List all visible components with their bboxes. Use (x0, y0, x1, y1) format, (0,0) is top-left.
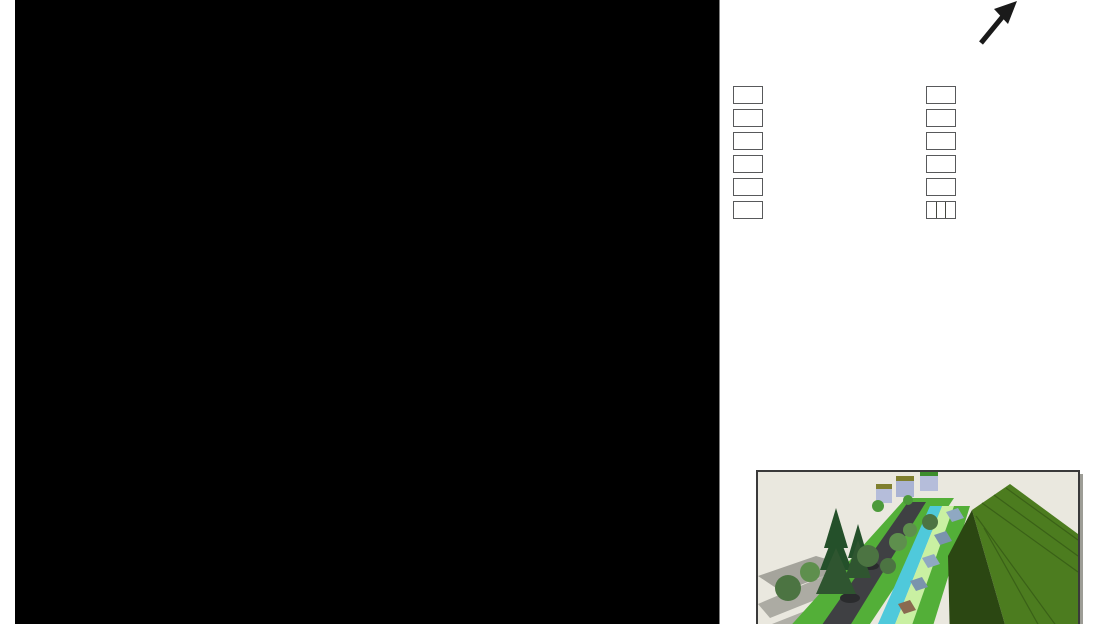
legend-swatch-groendak2 (733, 109, 763, 127)
legend-item (733, 201, 772, 221)
north-arrow-icon (972, 0, 1032, 50)
green-row-right (278, 323, 427, 370)
render-car (840, 593, 860, 603)
footpath (427, 323, 452, 624)
tree-square (145, 325, 235, 363)
render-3d-inset (756, 470, 1080, 624)
legend-swatch-kavel-verhard (926, 155, 956, 173)
legend-item (733, 109, 772, 129)
legend-swatch-openbare-buitenruimte (733, 155, 763, 173)
kavel-band (15, 89, 720, 163)
legend-swatch-groendak1 (733, 86, 763, 104)
legend-item (733, 178, 772, 198)
legend-item (733, 155, 772, 175)
legend-item (926, 132, 965, 152)
legend-swatch-kavel-onverhard (926, 132, 956, 150)
legend-item (926, 86, 965, 106)
legend-swatch-wegen (733, 201, 763, 219)
bottom-section (15, 323, 720, 624)
legend-swatch-parkeerplaats (926, 178, 956, 196)
water-layer (15, 163, 720, 205)
legend-column-2 (926, 86, 965, 222)
bomen-swatch-2 (937, 202, 947, 218)
bomen-swatch-1 (927, 202, 937, 218)
page (0, 0, 1110, 624)
legend-swatch-voetpaden (926, 86, 956, 104)
road-layer (15, 205, 720, 323)
legend-item (926, 178, 965, 198)
legend-swatch-kasgedeelte (733, 132, 763, 150)
legend-swatch-bomen (926, 201, 956, 219)
site-plan-drawing (0, 0, 720, 624)
legend-item (733, 86, 772, 106)
green-row-left (15, 323, 100, 370)
legend-swatch-brug (926, 109, 956, 127)
render-3d-image (758, 472, 1078, 624)
legend-item (926, 155, 965, 175)
park-area (452, 323, 720, 624)
legend-swatch-water (733, 178, 763, 196)
legend-item (926, 201, 965, 219)
green-roof-band (15, 0, 720, 89)
legend-column-1 (733, 86, 772, 224)
legend-item (926, 109, 965, 129)
legend-item (733, 132, 772, 152)
bomen-swatch-3 (946, 202, 955, 218)
